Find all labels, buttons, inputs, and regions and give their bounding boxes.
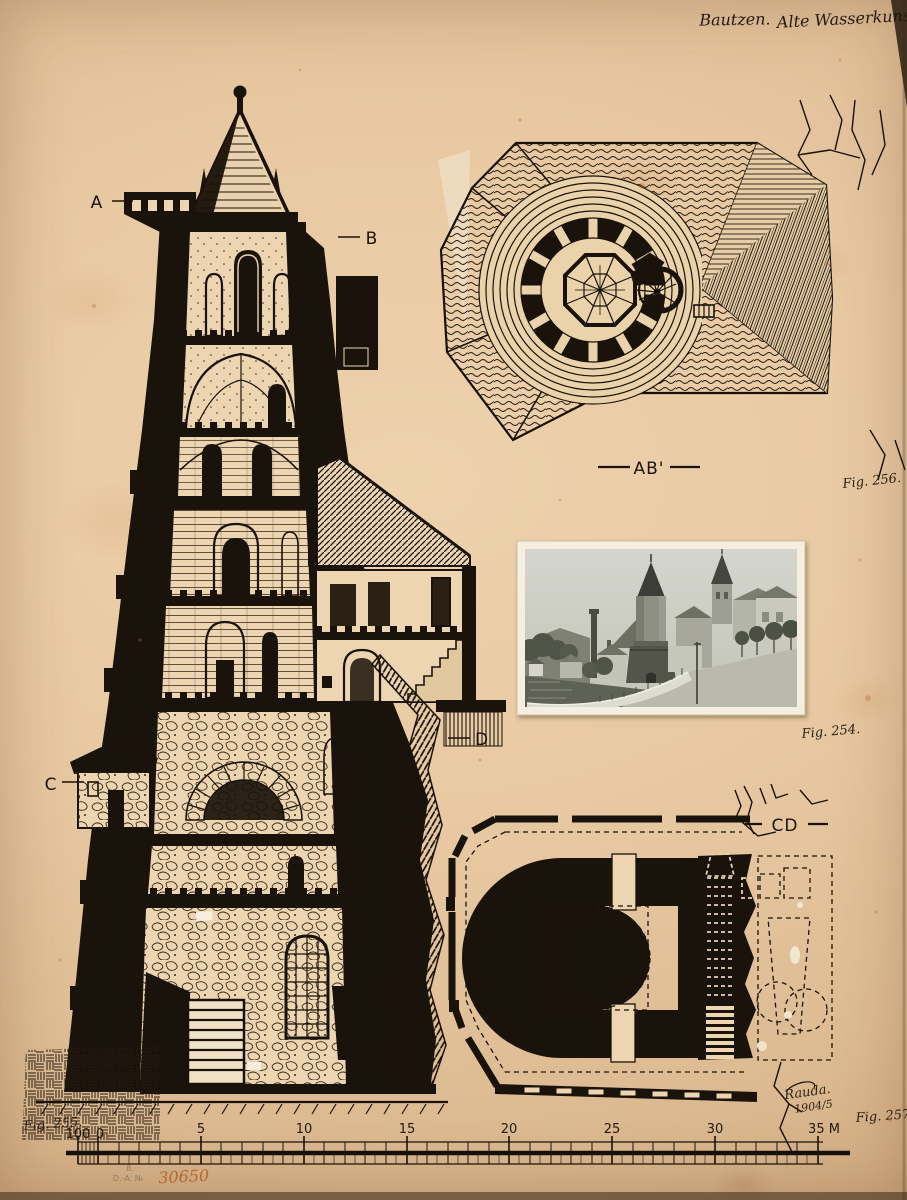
plate-titles: Bautzen. Alte Wasserkunst. [698,5,907,32]
stamp-line-top: 8. [126,1164,134,1173]
scale-label-100: 100 [66,1127,91,1142]
scale-label-10: 10 [296,1122,313,1137]
stamp-number: 30650 [158,1166,210,1188]
scale-label-30: 30 [707,1122,724,1137]
scale-label-20: 20 [501,1122,518,1137]
label-cd: CD [772,816,799,836]
tower-photograph: Fig. 254. [517,541,861,742]
scale-label-5: 5 [197,1122,205,1137]
annex-section [70,740,158,828]
scale-tick-labels: 100 0 5 10 15 20 25 30 35 M [66,1122,840,1142]
drawing-sheet: Bautzen. Alte Wasserkunst. [0,0,907,1200]
signature: Rauda. 1904/5 [782,1082,833,1116]
ladder [188,1000,244,1084]
label-a: A [91,193,104,213]
fig-254-label: Fig. 254. [800,722,861,742]
inventory-stamp: 8. D.-A. № 30650 [113,1164,210,1187]
handwritten-city-title: Bautzen. [698,9,771,29]
label-c: C [45,775,58,795]
label-d: D [475,730,489,750]
scale-label-0: 0 [96,1127,104,1142]
scale-label-35m: 35 M [808,1122,840,1137]
fig-256-label: Fig. 256. [841,471,902,492]
chapel-plan [565,255,635,325]
floor-plan-drawing: CD Rauda. 1904/5 Fig. 257. [446,784,907,1154]
roof-plan-caption: AB' [598,459,700,479]
roof-plan-drawing: AB' Fig. 256. [438,95,905,492]
floor-plan-caption: CD [745,816,828,836]
fig-257-label: Fig. 257. [854,1107,907,1126]
label-b: B [366,229,379,249]
stamp-line-bottom: D.-A. № [113,1174,144,1183]
scale-label-15: 15 [399,1122,416,1137]
handwritten-subject-title: Alte Wasserkunst. [774,5,907,32]
label-ab: AB' [634,459,665,479]
tower-section-drawing: A B C D Fig. 255. [22,86,506,1141]
scale-label-25: 25 [604,1122,621,1137]
scale-bar: 100 0 5 10 15 20 25 30 35 M [66,1122,850,1164]
